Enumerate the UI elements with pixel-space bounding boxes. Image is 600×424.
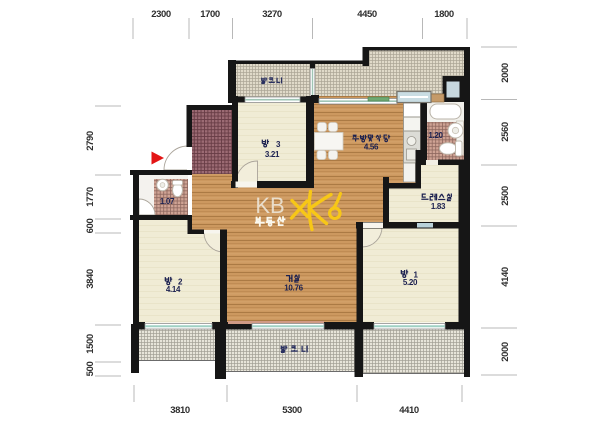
svg-text:5300: 5300 [282, 405, 302, 416]
svg-text:4140: 4140 [500, 267, 511, 287]
svg-text:4.56: 4.56 [364, 143, 379, 152]
svg-text:4450: 4450 [357, 9, 377, 20]
svg-text:3.21: 3.21 [265, 150, 280, 159]
svg-text:500: 500 [85, 362, 96, 377]
svg-text:KB: KB [255, 193, 284, 218]
svg-text:4.14: 4.14 [166, 285, 181, 294]
svg-text:3270: 3270 [262, 9, 282, 20]
svg-text:2500: 2500 [500, 186, 511, 206]
svg-text:2560: 2560 [500, 122, 511, 142]
svg-text:1500: 1500 [85, 334, 96, 354]
svg-text:600: 600 [85, 219, 96, 234]
svg-text:1.20: 1.20 [428, 131, 443, 140]
svg-text:2000: 2000 [500, 342, 511, 362]
svg-text:2300: 2300 [151, 9, 171, 20]
svg-text:3810: 3810 [170, 405, 190, 416]
svg-text:1700: 1700 [200, 9, 220, 20]
svg-text:4410: 4410 [399, 405, 419, 416]
svg-text:3840: 3840 [85, 269, 96, 289]
svg-text:10.76: 10.76 [284, 284, 303, 293]
svg-text:5.20: 5.20 [403, 278, 418, 287]
svg-text:1800: 1800 [434, 9, 454, 20]
svg-text:1.83: 1.83 [431, 202, 446, 211]
svg-text:2790: 2790 [85, 131, 96, 151]
svg-text:1770: 1770 [85, 187, 96, 207]
svg-text:2000: 2000 [500, 63, 511, 83]
svg-text:1.07: 1.07 [160, 197, 175, 206]
